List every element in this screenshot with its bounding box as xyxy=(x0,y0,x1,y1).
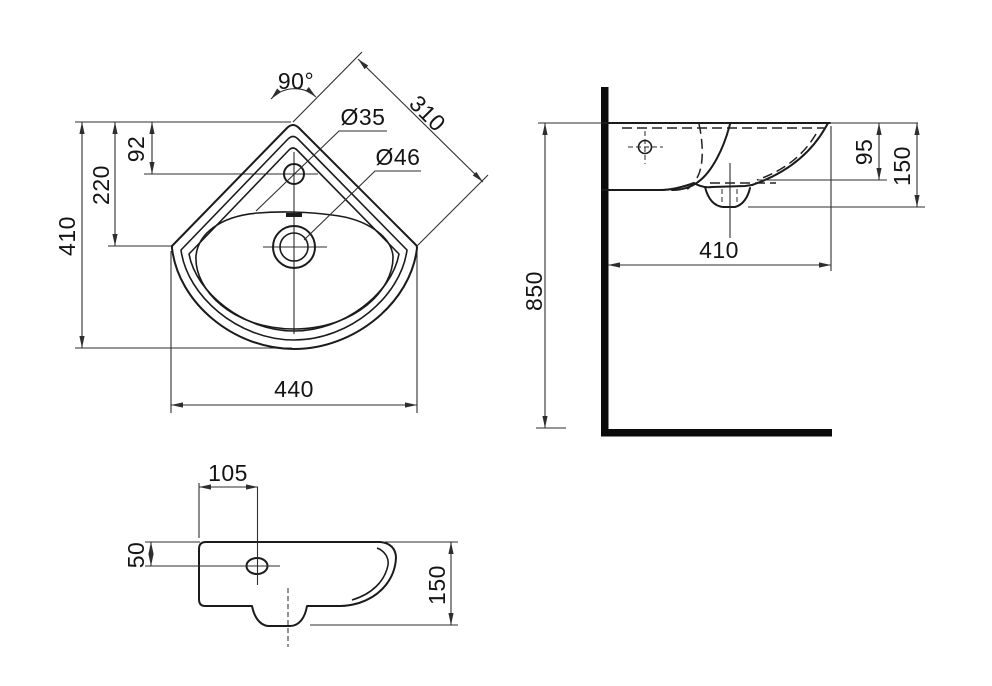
side-view: 850 410 95 150 xyxy=(521,87,925,437)
label-105: 105 xyxy=(208,460,248,486)
label-850: 850 xyxy=(521,271,547,311)
bowl-curve-right xyxy=(752,123,828,185)
label-92: 92 xyxy=(123,136,149,163)
label-50: 50 xyxy=(123,542,149,569)
drawing-sheet: 90° 310 Ø35 Ø46 92 220 410 440 xyxy=(0,0,992,686)
label-150-front: 150 xyxy=(424,565,450,605)
drain-trap-side xyxy=(705,187,750,207)
label-410: 410 xyxy=(54,216,80,256)
plan-view: 90° 310 Ø35 Ø46 92 220 410 440 xyxy=(54,52,488,413)
label-drain-dia: Ø46 xyxy=(376,144,421,170)
label-angle-90: 90° xyxy=(278,68,314,94)
label-150-side: 150 xyxy=(889,146,915,186)
front-view: 105 50 150 xyxy=(123,460,458,647)
front-dimension-lines xyxy=(145,483,458,625)
front-basin-profile xyxy=(145,487,396,647)
front-rim-inner-curve xyxy=(352,548,388,600)
label-edge-310: 310 xyxy=(404,90,451,137)
leader-tap-hole xyxy=(256,131,387,211)
label-410-side: 410 xyxy=(699,237,739,263)
front-outline xyxy=(199,542,396,626)
floor-section xyxy=(601,429,832,437)
label-95: 95 xyxy=(851,139,877,166)
label-440: 440 xyxy=(274,376,314,402)
label-tap-dia: Ø35 xyxy=(341,104,386,130)
label-220: 220 xyxy=(88,165,114,205)
basin-technical-drawing: 90° 310 Ø35 Ø46 92 220 410 440 xyxy=(0,0,992,686)
side-dimension-labels: 850 410 95 150 xyxy=(521,139,915,311)
front-dimension-labels: 105 50 150 xyxy=(123,460,450,605)
hidden-bowl-right xyxy=(757,134,816,180)
bowl-curve-left xyxy=(672,124,730,190)
wall-section xyxy=(601,87,609,436)
